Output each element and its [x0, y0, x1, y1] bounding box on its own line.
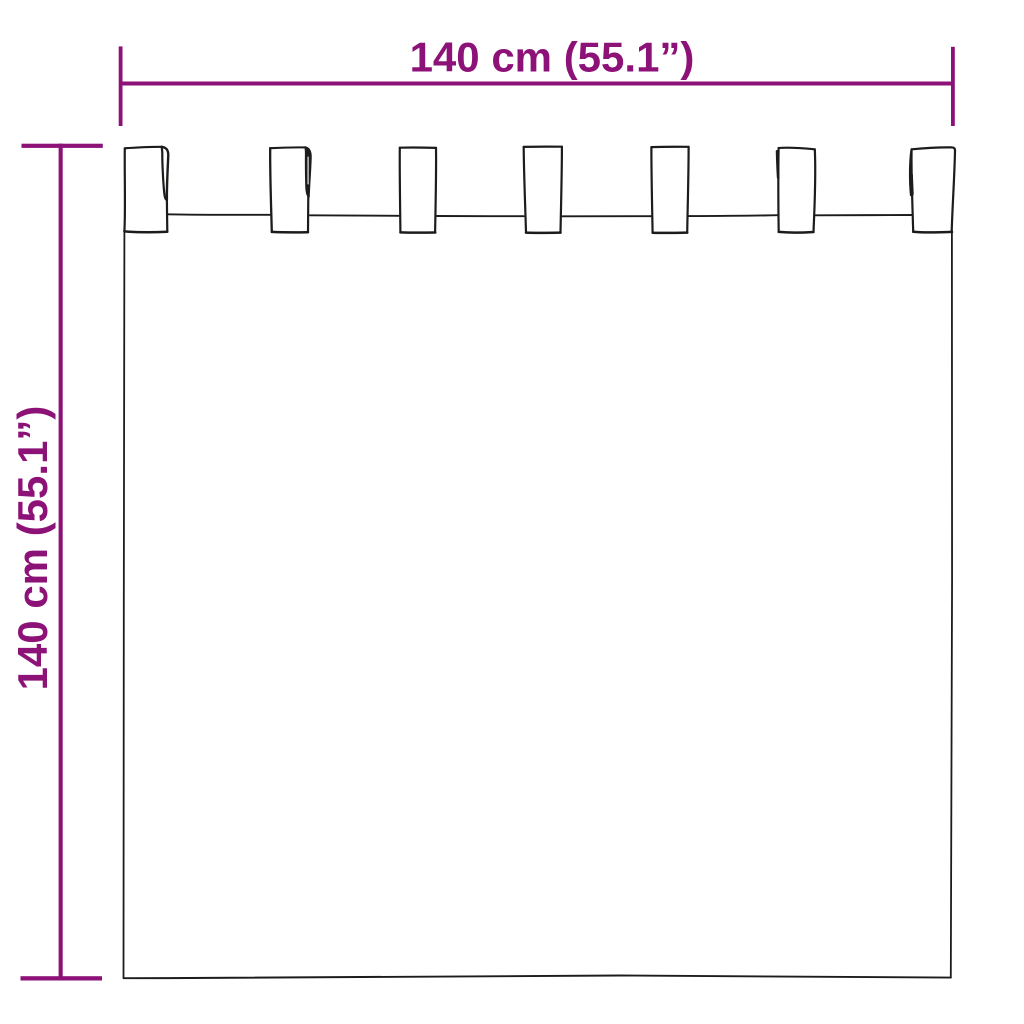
- svg-text:140 cm (55.1”): 140 cm (55.1”): [9, 406, 56, 691]
- svg-text:140 cm (55.1”): 140 cm (55.1”): [410, 34, 695, 81]
